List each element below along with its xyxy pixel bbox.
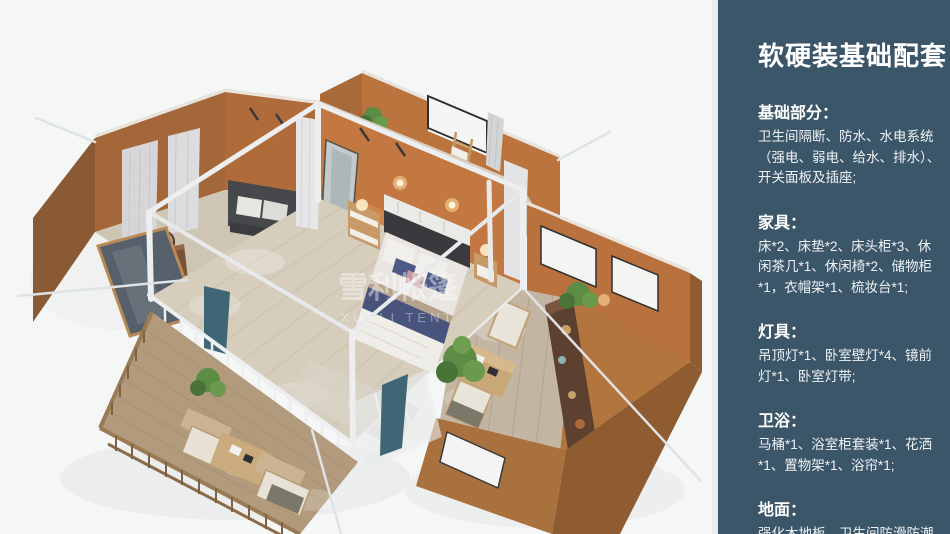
floorplan-render: 雪利帐篷 XUELI TENT xyxy=(0,0,712,534)
watermark: 雪利帐篷 XUELI TENT xyxy=(338,272,458,325)
section-basics-body: 卫生间隔断、防水、水电系统（强电、弱电、给水、排水）、开关面板及插座; xyxy=(758,127,942,189)
panel-title: 软硬装基础配套 xyxy=(758,36,947,73)
section-lighting-heading: 灯具： xyxy=(758,318,942,342)
section-flooring: 地面： 强化木地板、卫生间防滑防潮石塑板; xyxy=(758,496,942,534)
info-panel: 软硬装基础配套 基础部分： 卫生间隔断、防水、水电系统（强电、弱电、给水、排水）… xyxy=(718,0,950,534)
section-basics: 基础部分： 卫生间隔断、防水、水电系统（强电、弱电、给水、排水）、开关面板及插座… xyxy=(758,99,942,189)
section-basics-heading: 基础部分： xyxy=(758,99,942,123)
floorplan-svg: 雪利帐篷 XUELI TENT xyxy=(0,0,712,534)
section-furniture: 家具： 床*2、床垫*2、床头柜*3、休闲茶几*1、休闲椅*2、储物柜*1，衣帽… xyxy=(758,209,942,299)
section-furniture-body: 床*2、床垫*2、床头柜*3、休闲茶几*1、休闲椅*2、储物柜*1，衣帽架*1、… xyxy=(758,237,942,299)
watermark-en: XUELI TENT xyxy=(341,310,456,325)
section-flooring-heading: 地面： xyxy=(758,496,942,520)
section-furniture-heading: 家具： xyxy=(758,209,942,233)
section-bathroom: 卫浴： 马桶*1、浴室柜套装*1、花洒*1、置物架*1、浴帘*1; xyxy=(758,407,942,476)
section-bathroom-heading: 卫浴： xyxy=(758,407,942,431)
section-flooring-body: 强化木地板、卫生间防滑防潮石塑板; xyxy=(758,524,942,534)
section-bathroom-body: 马桶*1、浴室柜套装*1、花洒*1、置物架*1、浴帘*1; xyxy=(758,435,942,476)
watermark-cn: 雪利帐篷 xyxy=(338,272,458,305)
slide: 雪利帐篷 XUELI TENT 软硬装基础配套 基础部分： 卫生间隔断、防水、水… xyxy=(0,0,950,534)
section-lighting: 灯具： 吊顶灯*1、卧室壁灯*4、镜前灯*1、卧室灯带; xyxy=(758,318,942,387)
section-lighting-body: 吊顶灯*1、卧室壁灯*4、镜前灯*1、卧室灯带; xyxy=(758,346,942,387)
